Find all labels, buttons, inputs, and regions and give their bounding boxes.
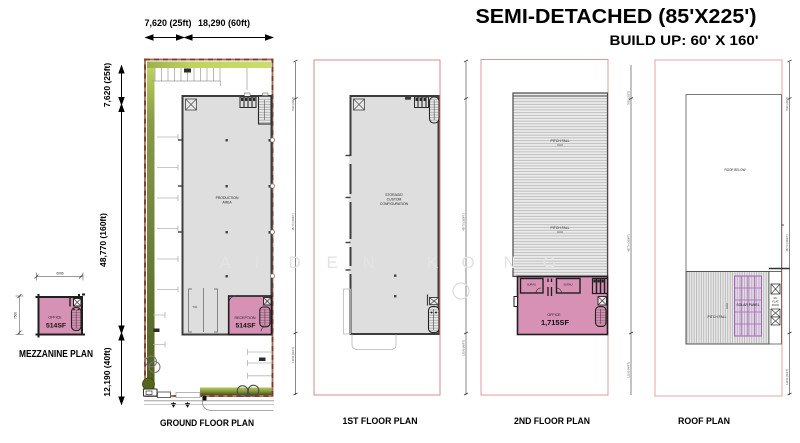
svg-text:48770 (160FT): 48770 (160FT)	[291, 213, 295, 230]
svg-text:1,715SF: 1,715SF	[541, 318, 569, 327]
svg-text:7620 (25FT): 7620 (25FT)	[291, 97, 295, 111]
svg-text:12190 (40FT): 12190 (40FT)	[291, 347, 295, 363]
svg-text:12190 (40FT): 12190 (40FT)	[462, 340, 466, 356]
svg-text:N: N	[363, 253, 375, 272]
svg-text:7620 (25FT): 7620 (25FT)	[627, 91, 631, 105]
svg-text:SURAU: SURAU	[527, 283, 536, 287]
svg-text:514SF: 514SF	[46, 323, 66, 330]
svg-text:SEMI-DETACHED (85'X225'): SEMI-DETACHED (85'X225')	[476, 6, 757, 28]
svg-text:12190 (40FT): 12190 (40FT)	[785, 369, 789, 385]
svg-text:OFFICE: OFFICE	[547, 313, 561, 317]
svg-text:BUILD UP: 60' X 160': BUILD UP: 60' X 160'	[610, 32, 759, 48]
svg-text:PITCH FALL: PITCH FALL	[550, 226, 569, 230]
svg-text:2ND FLOOR PLAN: 2ND FLOOR PLAN	[514, 416, 590, 427]
svg-text:E: E	[327, 253, 338, 272]
svg-text:18,290 (60ft): 18,290 (60ft)	[198, 18, 250, 28]
svg-text:CUSTOM: CUSTOM	[387, 198, 402, 202]
svg-text:I: I	[255, 253, 260, 272]
svg-text:48,770 (160ft): 48,770 (160ft)	[98, 213, 108, 267]
svg-text:6096: 6096	[56, 272, 63, 276]
svg-text:7500: 7500	[14, 312, 18, 319]
svg-text:K: K	[427, 253, 439, 272]
svg-text:SOLAR PANEL: SOLAR PANEL	[736, 303, 759, 307]
svg-text:FLAT: FLAT	[772, 299, 779, 303]
svg-text:D: D	[289, 253, 301, 272]
svg-text:A: A	[220, 253, 232, 272]
svg-text:48770 (160FT): 48770 (160FT)	[627, 234, 631, 251]
svg-text:7,620 (25ft): 7,620 (25ft)	[102, 63, 112, 108]
svg-text:ROOF PLAN: ROOF PLAN	[678, 416, 730, 427]
svg-text:SURAU: SURAU	[563, 283, 572, 287]
svg-text:48770 (160FT): 48770 (160FT)	[462, 213, 466, 230]
svg-text:AREA: AREA	[222, 201, 232, 205]
svg-text:PRODUCTION: PRODUCTION	[216, 196, 239, 200]
svg-text:G: G	[543, 253, 556, 272]
svg-text:12,190 (40ft): 12,190 (40ft)	[102, 347, 112, 396]
svg-text:RECEPTION: RECEPTION	[235, 316, 256, 320]
svg-text:514SF: 514SF	[235, 323, 255, 330]
svg-text:STORAGE/: STORAGE/	[385, 193, 403, 197]
svg-text:PITCH FALL: PITCH FALL	[707, 315, 726, 319]
svg-text:CONFIGURATION: CONFIGURATION	[380, 202, 409, 206]
svg-text:7,620 (25ft): 7,620 (25ft)	[144, 18, 191, 28]
svg-text:PITCH FALL: PITCH FALL	[550, 139, 569, 143]
svg-text:1ST FLOOR PLAN: 1ST FLOOR PLAN	[343, 416, 418, 427]
svg-text:TOL: TOL	[192, 305, 198, 309]
svg-text:ROOF: ROOF	[772, 303, 780, 307]
svg-text:RC: RC	[774, 296, 778, 300]
svg-text:48770 (160FT): 48770 (160FT)	[785, 234, 789, 251]
svg-text:ROOF BELOW: ROOF BELOW	[725, 168, 746, 172]
svg-text:N: N	[504, 253, 516, 272]
svg-text:MEZZANINE PLAN: MEZZANINE PLAN	[19, 349, 93, 360]
svg-text:12190 (40FT): 12190 (40FT)	[627, 362, 631, 378]
svg-text:GROUND FLOOR PLAN: GROUND FLOOR PLAN	[160, 418, 254, 429]
svg-text:OFFICE: OFFICE	[48, 316, 62, 320]
svg-text:O: O	[462, 253, 475, 272]
svg-text:7620 (25FT): 7620 (25FT)	[785, 97, 789, 111]
